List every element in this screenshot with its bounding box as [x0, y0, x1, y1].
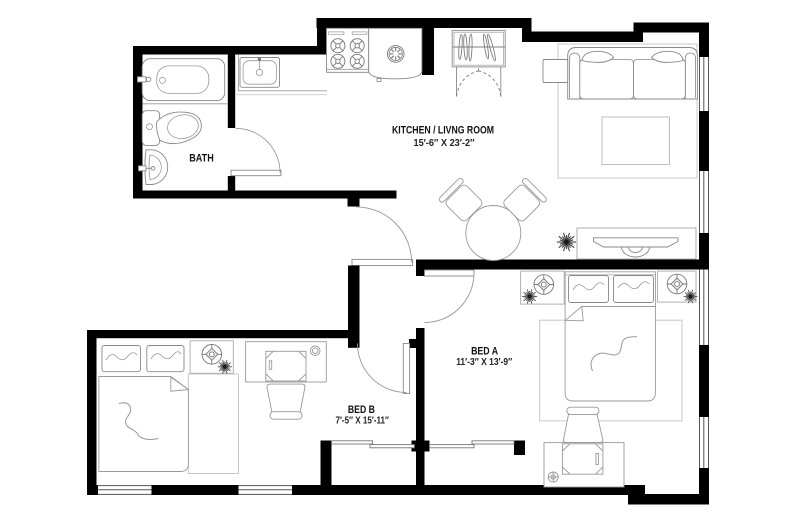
svg-text:BATH: BATH [189, 153, 214, 165]
svg-text:7′-5″ X 15′-11″: 7′-5″ X 15′-11″ [335, 416, 389, 427]
svg-text:BED A: BED A [471, 346, 498, 358]
svg-text:KITCHEN / LIVNG ROOM: KITCHEN / LIVNG ROOM [392, 125, 494, 137]
svg-text:11′-3″ X 13′-9″: 11′-3″ X 13′-9″ [456, 357, 512, 368]
svg-text:BED B: BED B [348, 404, 375, 416]
svg-text:15′-6″ X 23′-2″: 15′-6″ X 23′-2″ [414, 138, 475, 149]
